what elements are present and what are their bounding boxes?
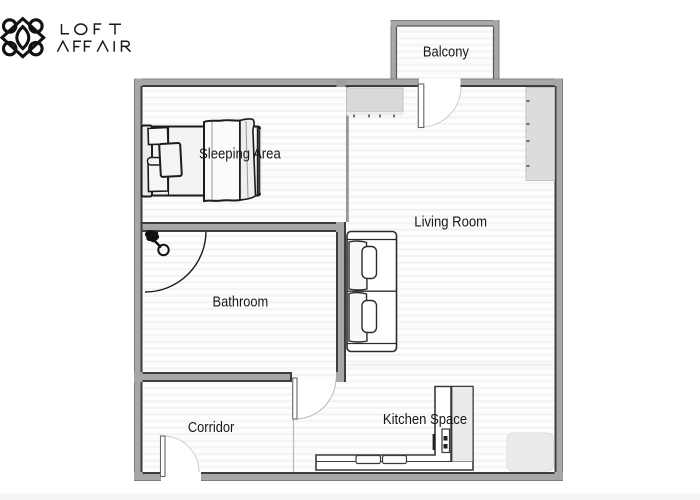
svg-text:Kitchen Space: Kitchen Space bbox=[383, 412, 467, 428]
svg-text:Sleeping Area: Sleeping Area bbox=[199, 147, 281, 163]
svg-text:Living Room: Living Room bbox=[414, 215, 487, 231]
svg-text:Bathroom: Bathroom bbox=[213, 294, 269, 310]
svg-text:Balcony: Balcony bbox=[423, 44, 470, 60]
svg-text:Corridor: Corridor bbox=[188, 420, 234, 436]
